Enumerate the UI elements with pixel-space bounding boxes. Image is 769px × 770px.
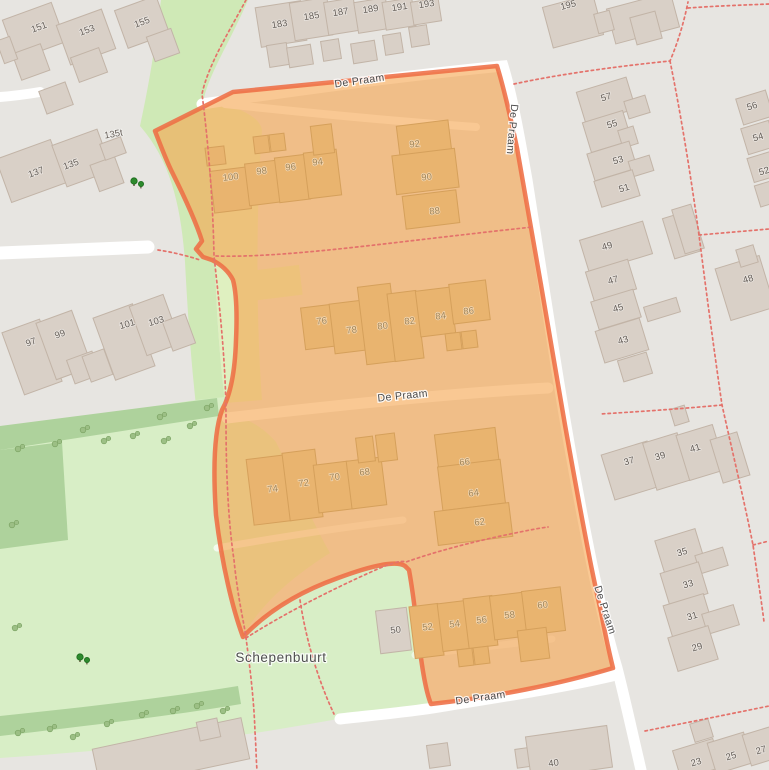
building-highlighted xyxy=(303,149,341,199)
house-number: 52 xyxy=(422,621,434,633)
house-number: 52 xyxy=(758,165,769,179)
building-highlighted xyxy=(445,332,462,351)
house-number: 66 xyxy=(459,456,471,468)
building-highlighted xyxy=(310,124,334,155)
house-number: 84 xyxy=(435,310,447,322)
tree-block-left xyxy=(0,442,68,549)
building xyxy=(427,743,451,769)
house-number: 56 xyxy=(476,614,488,626)
building-highlighted xyxy=(269,133,286,152)
house-number: 40 xyxy=(548,757,560,769)
building-highlighted xyxy=(356,436,376,463)
building xyxy=(409,25,430,48)
building xyxy=(196,718,220,741)
house-number: 98 xyxy=(256,165,268,177)
building-highlighted xyxy=(461,330,478,349)
house-number: 68 xyxy=(359,466,371,478)
house-number: 72 xyxy=(298,477,310,489)
house-number: 94 xyxy=(312,156,324,168)
house-number: 96 xyxy=(285,161,297,173)
house-number: 86 xyxy=(463,305,475,317)
house-number: 64 xyxy=(468,487,480,499)
house-number: 50 xyxy=(390,624,402,636)
building-highlighted xyxy=(449,280,491,324)
building-highlighted xyxy=(375,433,397,462)
place-label-schepenbuurt: Schepenbuurt xyxy=(235,650,326,665)
house-number: 88 xyxy=(429,205,441,217)
house-number: 100 xyxy=(222,171,239,184)
house-number: 78 xyxy=(346,324,358,336)
building xyxy=(321,39,342,62)
building-highlighted xyxy=(438,459,506,510)
house-number: 76 xyxy=(316,315,328,327)
road-stub-west xyxy=(0,247,148,253)
building xyxy=(383,33,404,56)
house-number: 92 xyxy=(409,138,421,150)
house-number: 60 xyxy=(537,599,549,611)
building-highlighted xyxy=(517,627,550,661)
building-highlighted xyxy=(457,648,474,667)
map-canvas[interactable]: 151153155135t137135183185187189191193195… xyxy=(0,0,769,770)
house-number: 80 xyxy=(377,320,389,332)
house-number: 70 xyxy=(329,471,341,483)
building xyxy=(287,44,314,68)
house-number: 90 xyxy=(421,171,433,183)
road-stub-northwest xyxy=(0,92,40,97)
house-number: 54 xyxy=(449,618,461,630)
building-highlighted xyxy=(346,457,387,509)
house-number: 62 xyxy=(474,516,486,528)
building xyxy=(351,40,378,64)
map-viewport[interactable]: 151153155135t137135183185187189191193195… xyxy=(0,0,769,770)
house-number: 74 xyxy=(267,483,279,495)
building-highlighted xyxy=(473,646,490,665)
building xyxy=(266,43,289,68)
building-highlighted xyxy=(253,135,270,154)
house-number: 82 xyxy=(404,315,416,327)
house-number: 58 xyxy=(504,609,516,621)
